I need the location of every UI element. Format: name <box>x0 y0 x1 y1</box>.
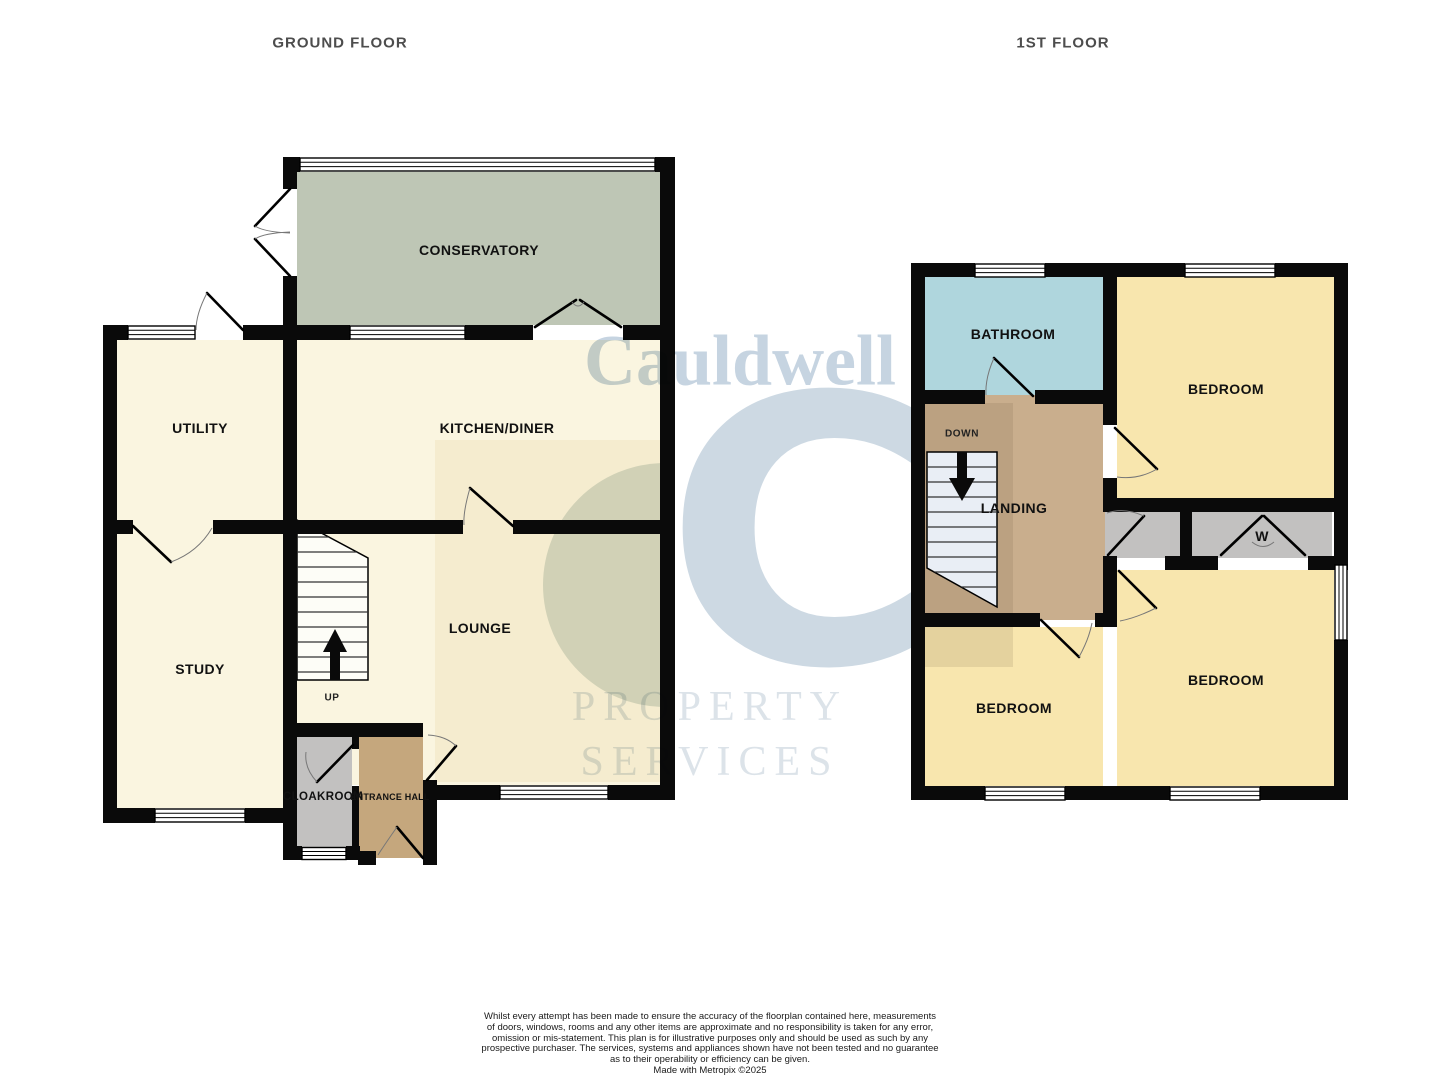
room-label-utility: UTILITY <box>172 420 228 436</box>
wardrobe-label: W <box>1255 528 1269 544</box>
first-floor-title: 1ST FLOOR <box>1016 35 1109 52</box>
floorplan-geometry <box>0 0 1450 1080</box>
room-label-lounge: LOUNGE <box>449 620 511 636</box>
room-label-conservatory: CONSERVATORY <box>419 242 539 258</box>
room-label-entrance-hall: ENTRANCE HALL <box>350 792 429 802</box>
room-label-study: STUDY <box>175 661 224 677</box>
stairs-up-label: UP <box>324 693 339 704</box>
room-label-bedroom-back-left: BEDROOM <box>976 700 1052 716</box>
disclaimer-line: of doors, windows, rooms and any other i… <box>481 1023 938 1034</box>
stairs-down-label: DOWN <box>945 429 979 440</box>
disclaimer: Whilst every attempt has been made to en… <box>481 1012 938 1077</box>
room-label-bathroom: BATHROOM <box>971 326 1056 342</box>
room-label-bedroom-back-right: BEDROOM <box>1188 672 1264 688</box>
metropix-credit: Made with Metropix ©2025 <box>481 1066 938 1077</box>
ground-floor-title: GROUND FLOOR <box>272 35 407 52</box>
floorplan-canvas: C Cauldwell PROPERTY SERVICES GROUND FLO… <box>0 0 1450 1080</box>
room-label-kitchen-diner: KITCHEN/DINER <box>440 420 555 436</box>
room-label-bedroom-front: BEDROOM <box>1188 381 1264 397</box>
room-label-landing: LANDING <box>981 500 1048 516</box>
